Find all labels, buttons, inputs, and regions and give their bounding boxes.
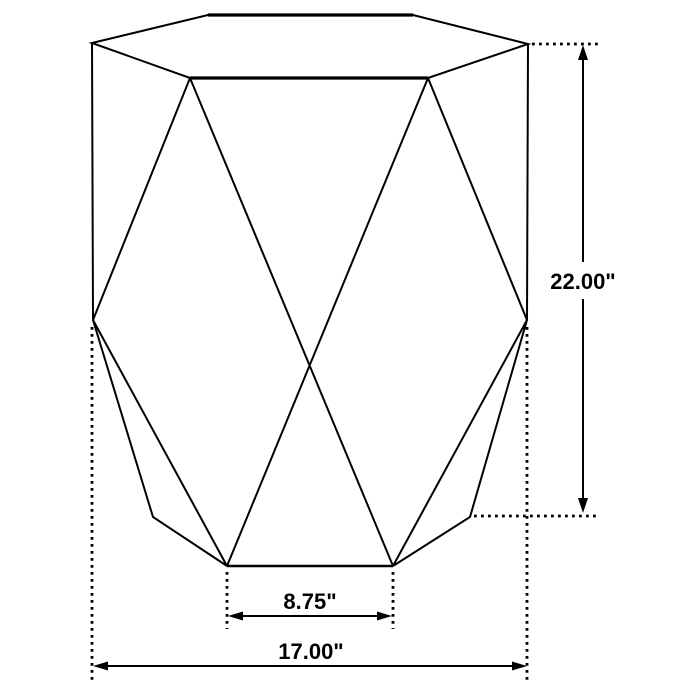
height-arrowhead-up [578, 45, 588, 60]
overall-width-arrowhead-right [512, 662, 527, 671]
table-drawing [92, 15, 528, 566]
left-side-edge [92, 43, 93, 320]
tabletop-hexagon [92, 15, 528, 78]
base-width-arrowhead-left [228, 612, 243, 621]
dimension-diagram: 22.00" 8.75" 17.00" [0, 0, 700, 700]
facet-edge-left-mid-to-bottom-left [93, 320, 227, 566]
height-dimension-label: 22.00" [550, 269, 615, 294]
height-dimension: 22.00" [550, 45, 615, 513]
right-side-edge [527, 44, 528, 320]
overall-width-dimension-label: 17.00" [278, 639, 343, 664]
overall-width-arrowhead-left [93, 662, 108, 671]
facet-long-diagonal-left [190, 78, 393, 566]
overall-width-dimension: 17.00" [93, 639, 527, 671]
base-front-width-dimension: 8.75" [228, 589, 392, 621]
base-width-arrowhead-right [377, 612, 392, 621]
base-width-dimension-label: 8.75" [283, 589, 336, 614]
facet-edge-front-right-to-right-mid [428, 78, 527, 320]
facet-long-diagonal-right [227, 78, 428, 566]
height-arrowhead-down [578, 498, 588, 513]
table-dimension-svg: 22.00" 8.75" 17.00" [0, 0, 700, 700]
extension-lines [92, 44, 598, 684]
facet-edge-right-mid-to-bottom-right [393, 320, 527, 566]
facet-edge-front-left-to-left-mid [93, 78, 190, 320]
